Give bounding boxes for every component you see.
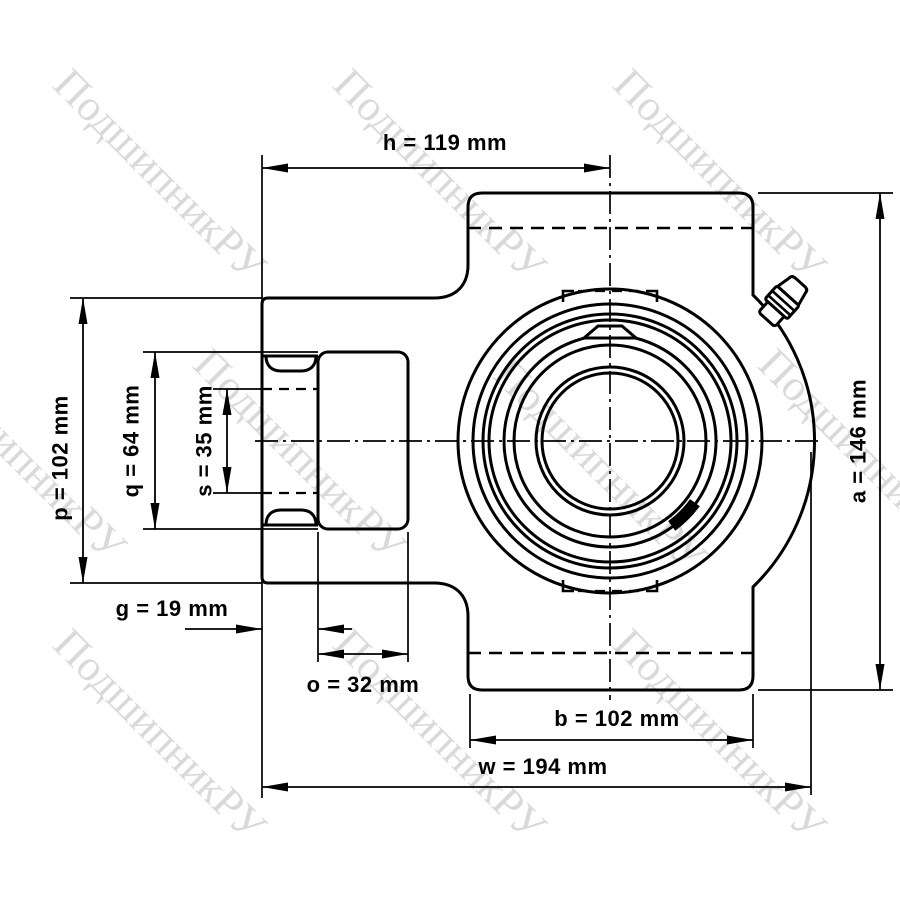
dim-s-label: s = 35 mm — [192, 385, 217, 497]
dim-w-label: w = 194 mm — [477, 754, 607, 779]
dim-b-label: b = 102 mm — [554, 706, 679, 731]
technical-drawing-canvas: h = 119 mm p = 102 mm q = 64 mm s = 35 m… — [0, 0, 900, 900]
dim-a-label: a = 146 mm — [846, 379, 871, 503]
dim-h-label: h = 119 mm — [383, 130, 507, 155]
dim-o-label: o = 32 mm — [307, 672, 420, 697]
dim-p-label: p = 102 mm — [48, 395, 73, 520]
dim-g-label: g = 19 mm — [116, 596, 229, 621]
dim-q-label: q = 64 mm — [119, 385, 144, 498]
